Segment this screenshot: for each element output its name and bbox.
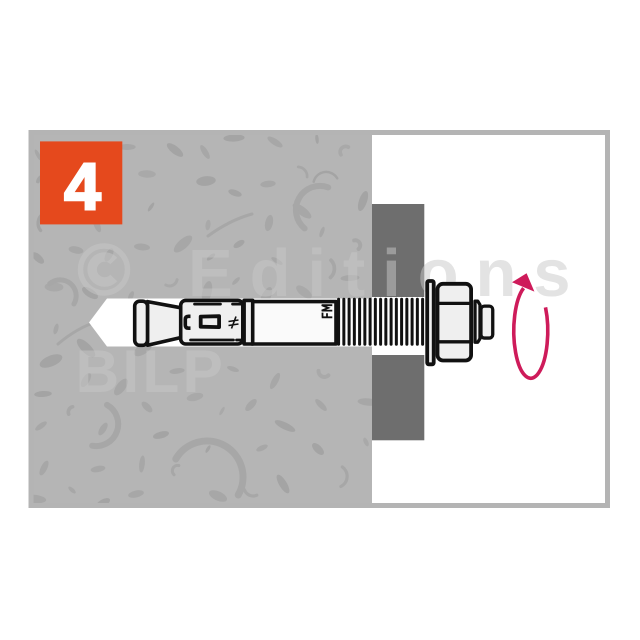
svg-text:4: 4: [64, 149, 101, 223]
svg-text:BILP: BILP: [76, 337, 227, 405]
